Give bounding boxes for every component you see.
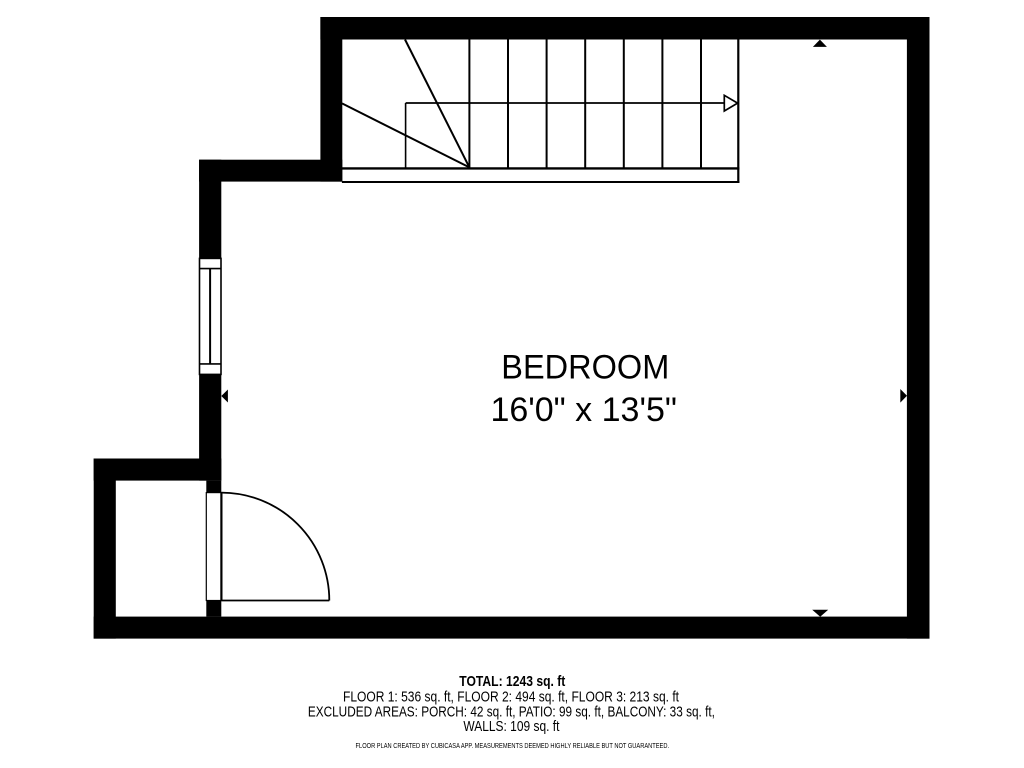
- svg-text:16'0" x 13'5": 16'0" x 13'5": [490, 391, 677, 429]
- svg-text:FLOOR 1: 536 sq. ft, FLOOR 2:: FLOOR 1: 536 sq. ft, FLOOR 2: 494 sq. ft…: [343, 689, 679, 705]
- svg-text:TOTAL: 1243 sq. ft: TOTAL: 1243 sq. ft: [459, 673, 565, 690]
- svg-text:FLOOR PLAN CREATED BY CUBICASA: FLOOR PLAN CREATED BY CUBICASA APP. MEAS…: [356, 743, 670, 750]
- svg-text:BEDROOM: BEDROOM: [501, 349, 669, 387]
- svg-text:WALLS: 109 sq. ft: WALLS: 109 sq. ft: [463, 719, 559, 735]
